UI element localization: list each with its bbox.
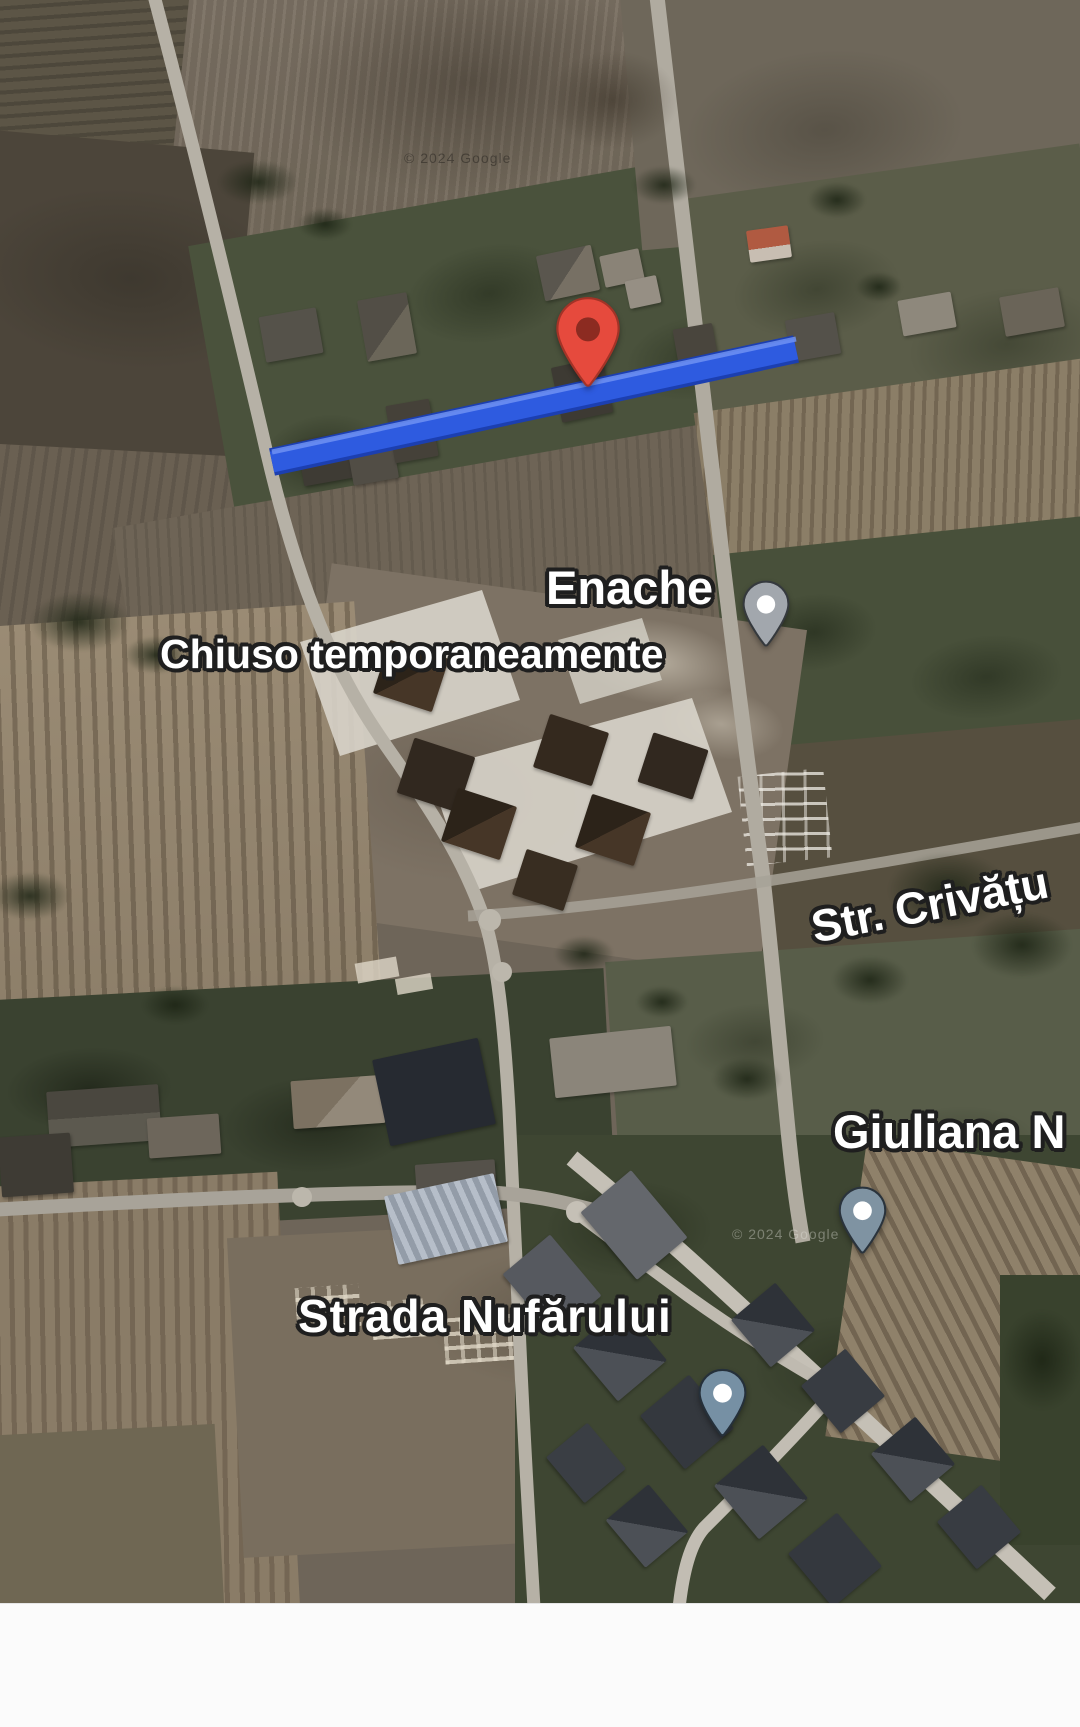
route-layer [0,0,1080,1603]
nufarului-poi-pin-icon[interactable] [698,1368,747,1438]
phone-screen: Enache Chiuso temporaneamente Str. Crivă… [0,0,1080,1727]
route-line[interactable] [272,339,796,452]
route-line[interactable] [272,349,796,462]
destination-marker-icon[interactable] [555,296,621,389]
enache-poi-pin-icon[interactable] [742,580,790,648]
imagery-watermark: © 2024 Google [732,1226,839,1242]
giuliana-poi-pin-icon[interactable] [838,1186,887,1255]
poi-label-giuliana[interactable]: Giuliana N [833,1104,1065,1159]
status-label-temporarily-closed: Chiuso temporaneamente [160,631,664,678]
imagery-watermark: © 2024 Google [404,150,511,166]
poi-label-enache[interactable]: Enache [546,560,713,615]
navigation-bar [0,1603,1080,1727]
street-label-nufarului: Strada Nufărului [298,1289,672,1343]
map-viewport[interactable]: Enache Chiuso temporaneamente Str. Crivă… [0,0,1080,1603]
